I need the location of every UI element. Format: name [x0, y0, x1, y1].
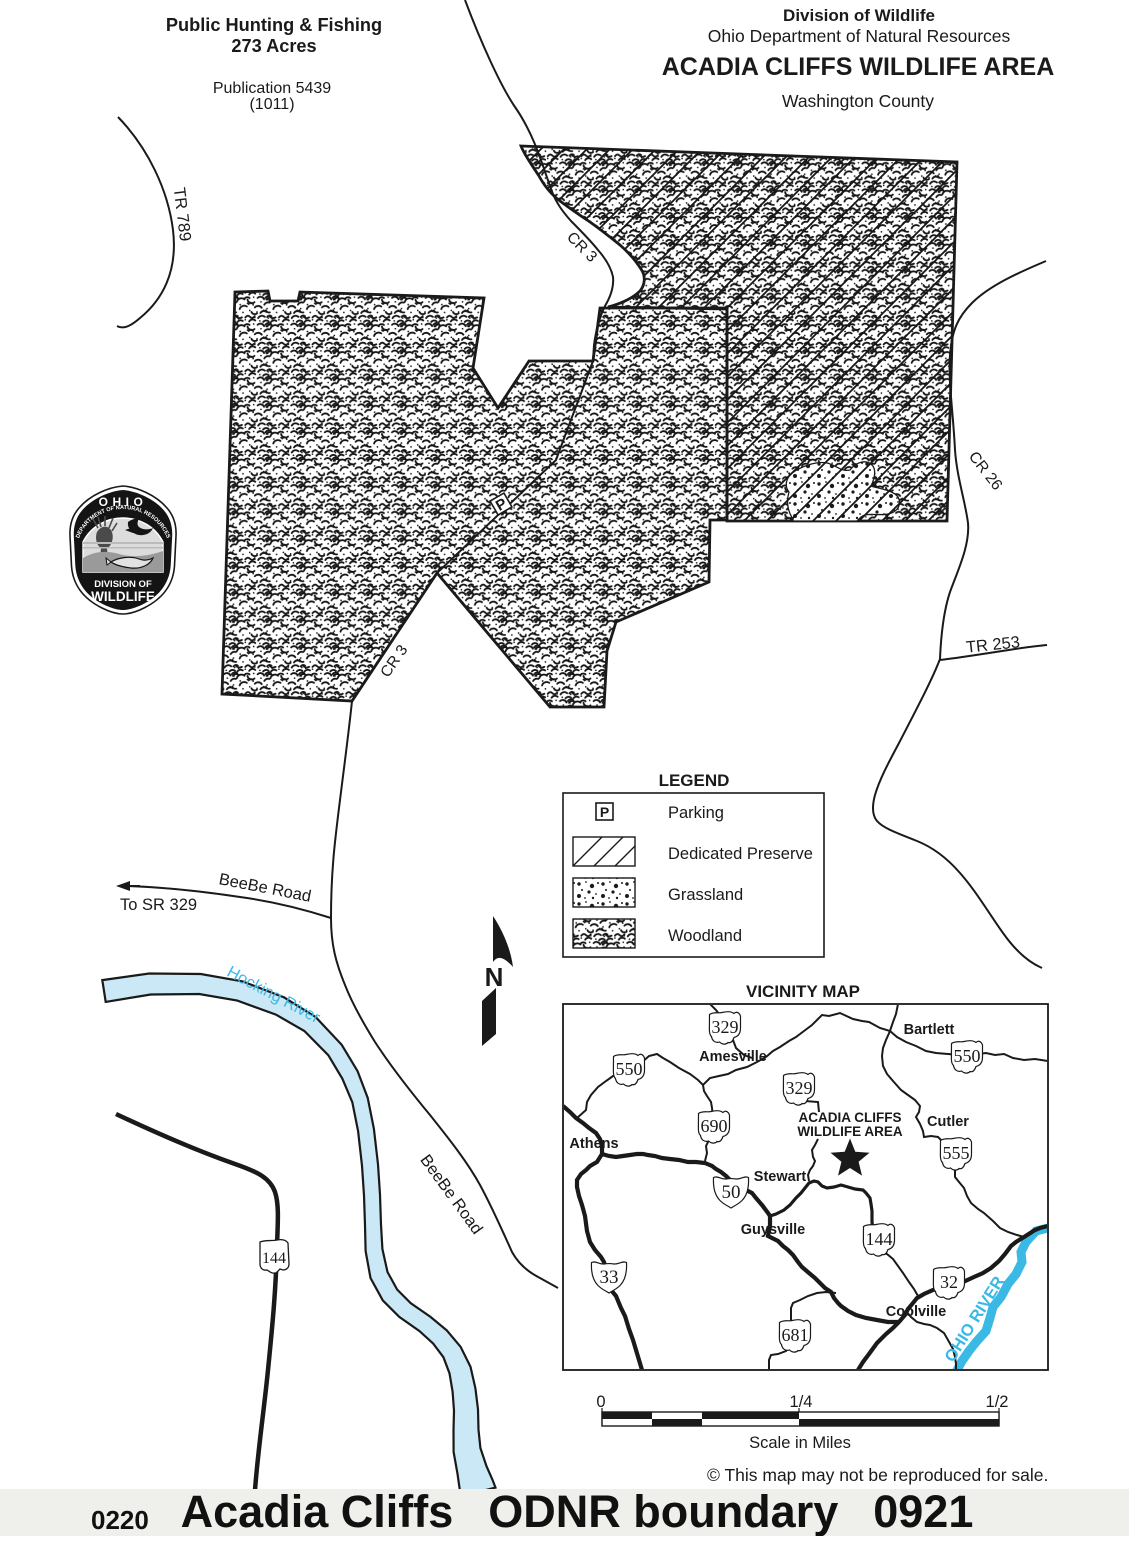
svg-text:0220: 0220 — [91, 1505, 149, 1535]
svg-text:Division of Wildlife: Division of Wildlife — [783, 6, 935, 25]
svg-text:LEGEND: LEGEND — [659, 771, 730, 790]
svg-text:33: 33 — [600, 1267, 619, 1288]
svg-text:ACADIA CLIFFS WILDLIFE AREA: ACADIA CLIFFS WILDLIFE AREA — [662, 53, 1055, 81]
svg-text:Guysville: Guysville — [741, 1222, 805, 1238]
svg-text:50: 50 — [722, 1182, 741, 1203]
svg-text:© This map may not be reproduc: © This map may not be reproduced for sal… — [707, 1465, 1048, 1485]
svg-text:Acadia Cliffs ODNR boundary: Acadia Cliffs ODNR boundary 0921 — [181, 1486, 974, 1536]
svg-text:273 Acres: 273 Acres — [231, 36, 316, 56]
svg-text:Ohio Department of Natural Res: Ohio Department of Natural Resources — [708, 26, 1011, 46]
svg-text:N: N — [485, 962, 504, 992]
svg-text:Amesville: Amesville — [699, 1049, 767, 1065]
svg-text:Grassland: Grassland — [668, 886, 743, 904]
svg-text:Scale in Miles: Scale in Miles — [749, 1434, 851, 1452]
svg-text:32: 32 — [940, 1272, 958, 1292]
svg-text:555: 555 — [943, 1143, 970, 1163]
svg-text:0: 0 — [596, 1393, 605, 1411]
svg-text:Cutler: Cutler — [927, 1114, 969, 1130]
svg-text:681: 681 — [782, 1325, 809, 1345]
svg-text:Woodland: Woodland — [668, 927, 742, 945]
svg-text:WILDLIFE: WILDLIFE — [91, 589, 155, 604]
svg-text:144: 144 — [866, 1229, 893, 1249]
svg-text:Coolville: Coolville — [886, 1304, 946, 1320]
svg-text:To SR 329: To SR 329 — [120, 896, 197, 914]
svg-text:Bartlett: Bartlett — [904, 1022, 955, 1038]
svg-text:Athens: Athens — [569, 1136, 618, 1152]
svg-text:P: P — [600, 804, 609, 820]
svg-text:Stewart: Stewart — [754, 1169, 807, 1185]
svg-text:1/4: 1/4 — [790, 1393, 813, 1411]
svg-text:1/2: 1/2 — [986, 1393, 1009, 1411]
svg-text:Publication 5439: Publication 5439 — [213, 80, 331, 97]
svg-text:VICINITY MAP: VICINITY MAP — [746, 982, 860, 1001]
svg-text:690: 690 — [701, 1116, 728, 1136]
svg-text:(1011): (1011) — [249, 96, 294, 113]
svg-text:Parking: Parking — [668, 804, 724, 822]
svg-text:550: 550 — [616, 1059, 643, 1079]
svg-text:Dedicated Preserve: Dedicated Preserve — [668, 845, 813, 863]
svg-text:329: 329 — [712, 1017, 739, 1037]
svg-text:550: 550 — [954, 1046, 981, 1066]
svg-text:329: 329 — [786, 1078, 813, 1098]
svg-text:ACADIA CLIFFS: ACADIA CLIFFS — [799, 1110, 902, 1125]
svg-text:144: 144 — [262, 1250, 286, 1267]
svg-text:Washington County: Washington County — [782, 91, 934, 111]
svg-text:Public Hunting & Fishing: Public Hunting & Fishing — [166, 15, 382, 35]
svg-text:WILDLIFE AREA: WILDLIFE AREA — [797, 1124, 902, 1139]
